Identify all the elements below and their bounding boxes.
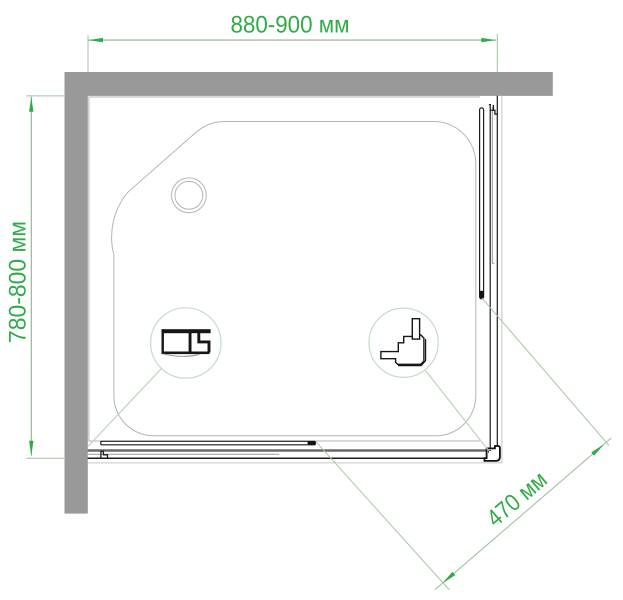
svg-text:880-900 мм: 880-900 мм xyxy=(231,12,350,39)
svg-text:780-800 мм: 780-800 мм xyxy=(5,221,32,343)
